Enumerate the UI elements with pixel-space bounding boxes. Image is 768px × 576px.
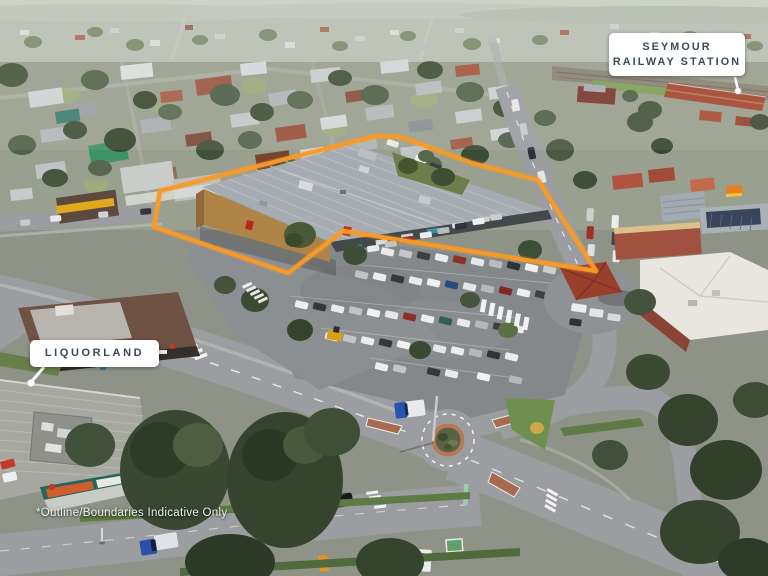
station-label-line2: RAILWAY STATION (613, 55, 741, 70)
boundary-disclaimer-text: *Outline/Boundaries Indicative Only (36, 507, 227, 519)
station-pointer-dot (735, 88, 741, 94)
liquorland-label: LIQUORLAND (30, 340, 159, 367)
aerial-scene (0, 0, 768, 576)
liquorland-label-text: LIQUORLAND (45, 346, 144, 361)
seymour-railway-station-label: SEYMOUR RAILWAY STATION (609, 33, 745, 76)
aerial-photo: SEYMOUR RAILWAY STATION LIQUORLAND *Outl… (0, 0, 768, 576)
station-label-line1: SEYMOUR (642, 40, 711, 55)
liquorland-pointer-dot (27, 379, 34, 386)
